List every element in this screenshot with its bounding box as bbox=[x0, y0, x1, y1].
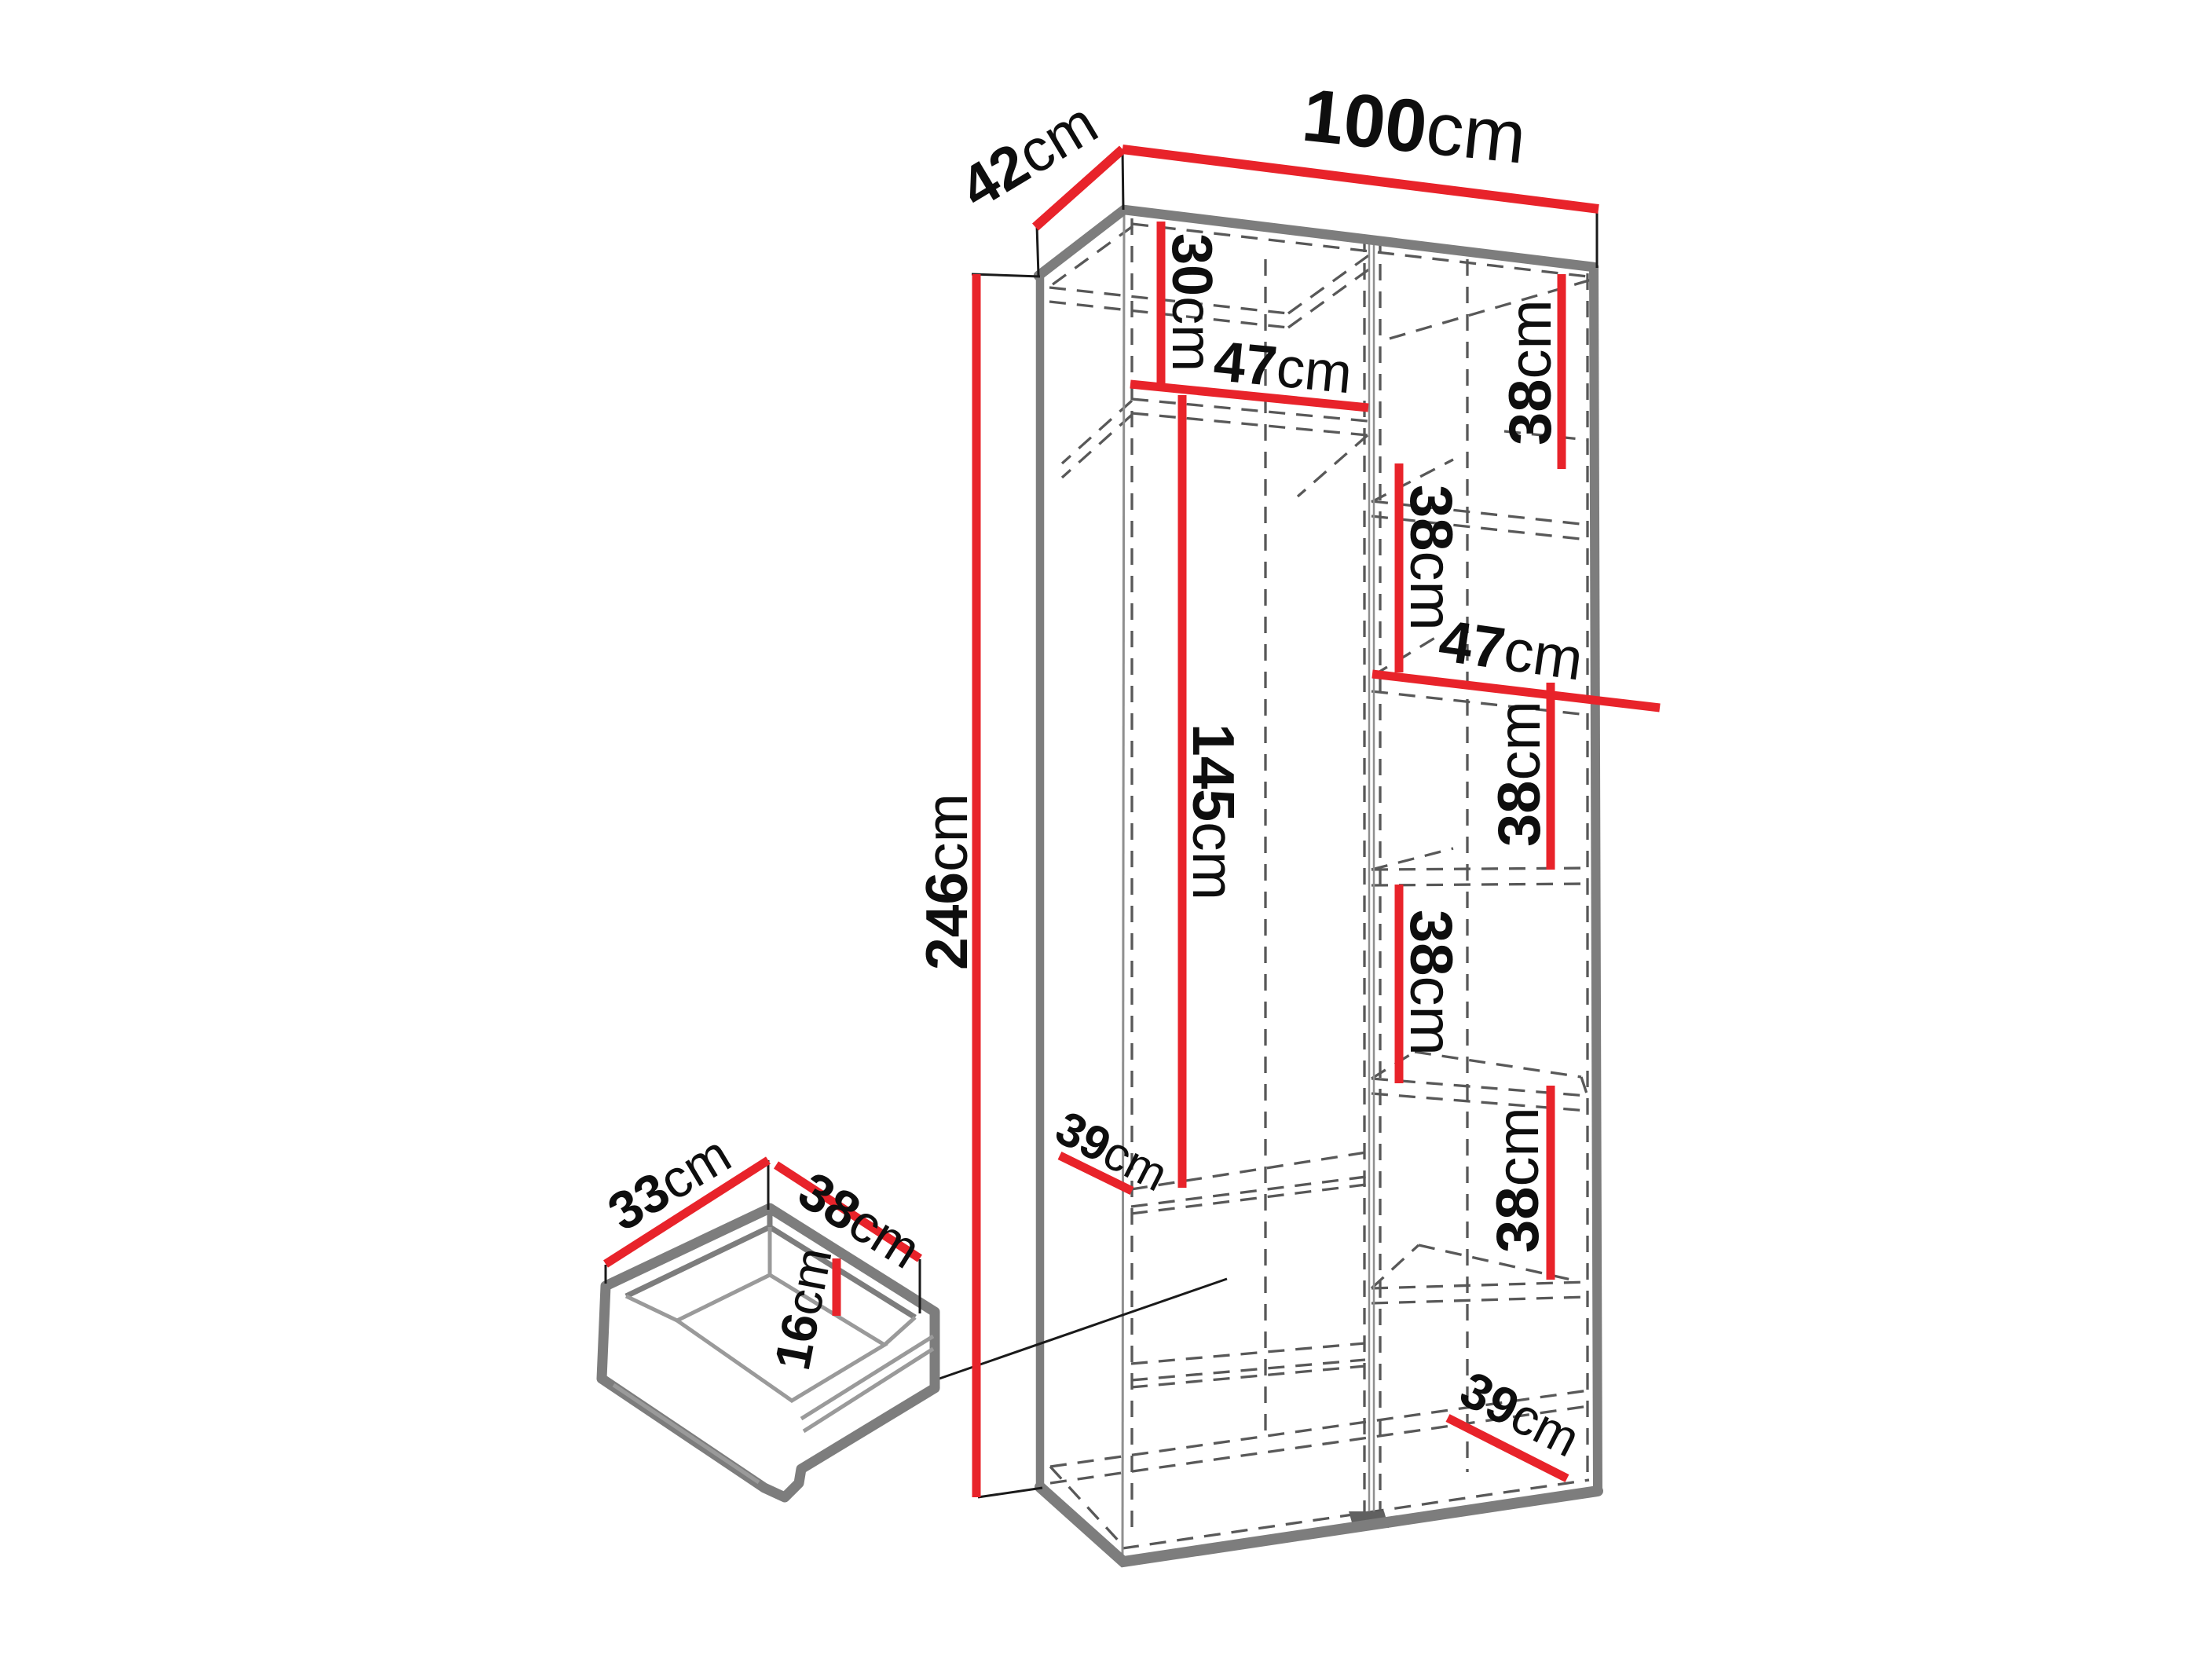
svg-text:38cm: 38cm bbox=[1485, 1107, 1551, 1253]
svg-text:38cm: 38cm bbox=[1486, 701, 1553, 847]
svg-text:47cm: 47cm bbox=[1211, 330, 1355, 406]
svg-text:246cm: 246cm bbox=[914, 793, 980, 970]
svg-text:145cm: 145cm bbox=[1181, 723, 1247, 900]
svg-text:30cm: 30cm bbox=[1160, 233, 1223, 372]
svg-text:38cm: 38cm bbox=[1497, 299, 1564, 445]
svg-text:38cm: 38cm bbox=[1397, 910, 1464, 1056]
svg-text:38cm: 38cm bbox=[1397, 485, 1464, 631]
